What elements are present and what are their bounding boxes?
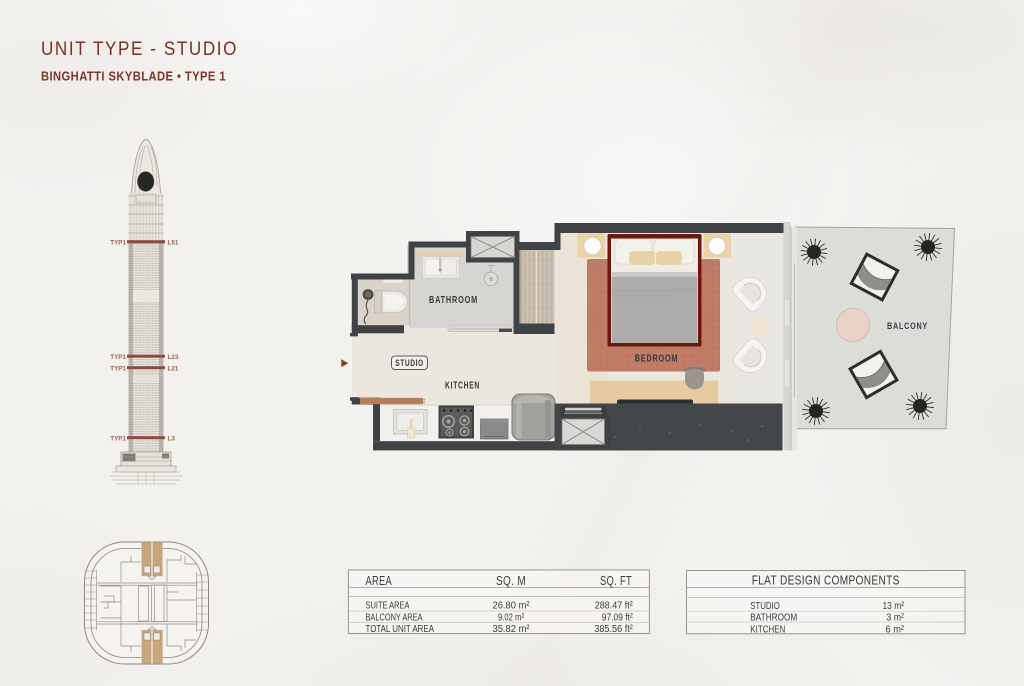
svg-text:6 m²: 6 m² [886,625,905,636]
svg-text:288.47 ft²: 288.47 ft² [595,601,634,612]
svg-text:SQ. FT: SQ. FT [600,573,632,588]
svg-text:STUDIO: STUDIO [395,358,424,368]
svg-text:UNIT TYPE - STUDIO: UNIT TYPE - STUDIO [41,39,238,60]
svg-text:BALCONY: BALCONY [887,321,928,332]
svg-text:BATHROOM: BATHROOM [750,613,797,624]
svg-text:3 m²: 3 m² [886,613,904,624]
svg-text:STUDIO: STUDIO [750,601,780,612]
svg-text:AREA: AREA [366,573,393,588]
svg-text:97.09 ft²: 97.09 ft² [602,613,634,624]
svg-text:35.82 m²: 35.82 m² [493,624,531,635]
svg-text:KITCHEN: KITCHEN [750,625,785,636]
svg-text:BEDROOM: BEDROOM [635,353,679,364]
svg-text:385.56 ft²: 385.56 ft² [594,624,633,635]
svg-text:TOTAL UNIT AREA: TOTAL UNIT AREA [366,624,435,635]
svg-text:KITCHEN: KITCHEN [445,381,480,392]
svg-text:SUITE AREA: SUITE AREA [366,601,410,612]
svg-text:BATHROOM: BATHROOM [429,295,478,306]
svg-text:13 m²: 13 m² [883,601,905,612]
svg-text:9.02 m²: 9.02 m² [498,613,525,624]
svg-text:BALCONY AREA: BALCONY AREA [366,613,423,624]
svg-text:SQ. M: SQ. M [496,573,526,588]
svg-text:26.80 m²: 26.80 m² [493,601,531,612]
svg-text:BINGHATTI SKYBLADE • TYPE 1: BINGHATTI SKYBLADE • TYPE 1 [41,69,226,84]
svg-text:FLAT DESIGN COMPONENTS: FLAT DESIGN COMPONENTS [752,574,900,588]
